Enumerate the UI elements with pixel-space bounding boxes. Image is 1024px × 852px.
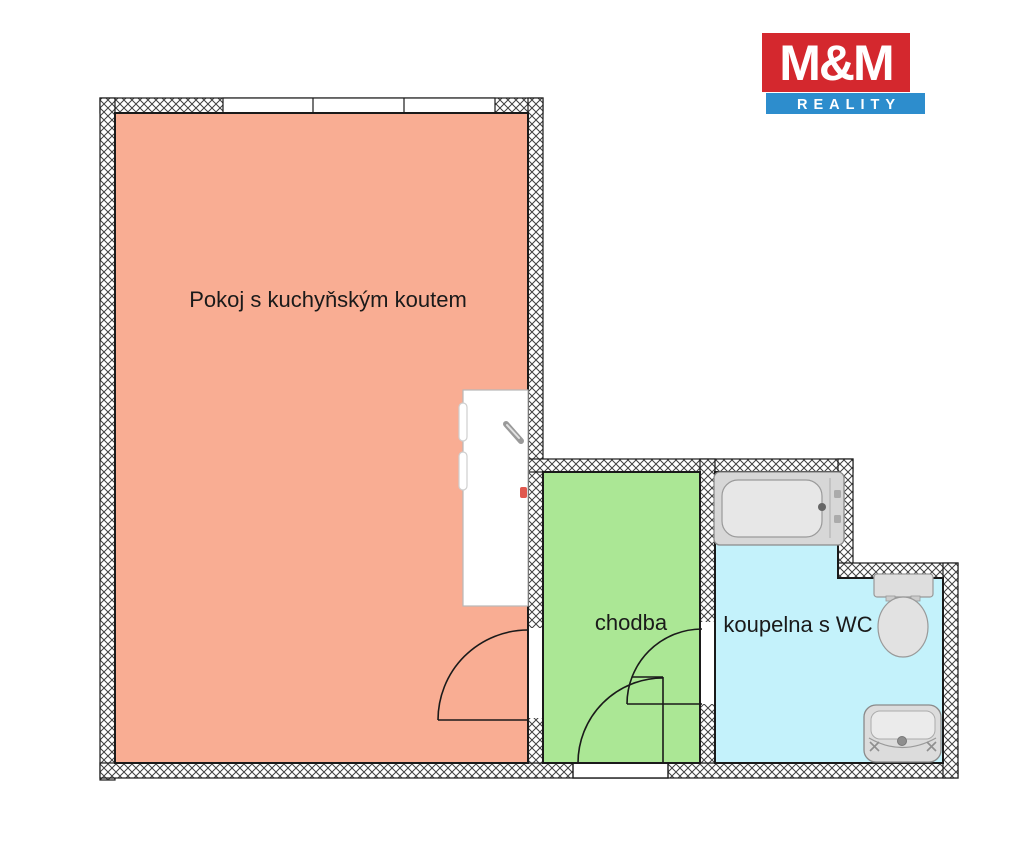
door-opening-main <box>527 628 544 718</box>
sink <box>864 705 941 762</box>
floor-plan-page: Pokoj s kuchyňským koutem chodba koupeln… <box>0 0 1024 852</box>
room-hallway-label: chodba <box>595 610 668 635</box>
window-band <box>223 98 495 113</box>
rooms <box>115 113 943 763</box>
door-opening-bathroom <box>699 622 716 704</box>
bathtub-basin <box>722 480 822 537</box>
wall-bath-right <box>943 563 958 778</box>
sink-basin <box>871 711 935 739</box>
kitchen-counter <box>459 390 528 606</box>
door-opening-entrance <box>573 763 668 778</box>
toilet-tank <box>874 574 933 597</box>
wall-hall-bath-divider <box>700 459 715 763</box>
bathtub-fitting <box>834 515 841 523</box>
cabinet-handle-icon <box>459 452 467 490</box>
sink-drain <box>898 737 907 746</box>
bathtub <box>714 472 844 545</box>
toilet-bowl <box>878 597 928 657</box>
logo-mm-text: M&M <box>779 35 892 91</box>
room-bathroom-label: koupelna s WC <box>723 612 872 637</box>
window-glass <box>223 98 495 113</box>
door-stop-marker <box>520 487 527 498</box>
cabinet-handle-icon <box>459 403 467 441</box>
kitchen-counter-top <box>463 390 528 606</box>
floor-plan-svg: Pokoj s kuchyňským koutem chodba koupeln… <box>0 0 1024 852</box>
bathtub-fitting <box>834 490 841 498</box>
room-main-label: Pokoj s kuchyňským koutem <box>189 287 467 312</box>
logo: M&M REALITY <box>762 33 925 114</box>
logo-reality-text: REALITY <box>797 97 901 113</box>
bathtub-drain <box>818 503 826 511</box>
wall-hall-top <box>528 459 853 472</box>
wall-bottom <box>100 763 958 778</box>
wall-left <box>100 98 115 780</box>
